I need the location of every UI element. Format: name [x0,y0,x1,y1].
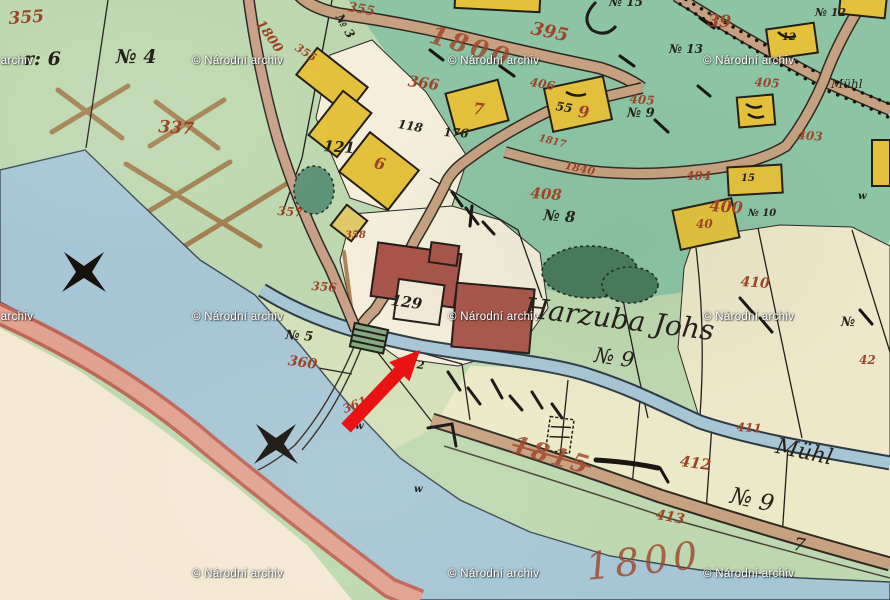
watermark-layer: © Národní archiv© Národní archiv© Národn… [0,0,890,600]
watermark-text: © Národní archiv [703,568,794,582]
watermark-text: © Národní archiv [0,55,33,69]
watermark-text: © Národní archiv [703,55,794,69]
watermark-text: © Národní archiv [192,311,283,325]
watermark-text: © Národní archiv [448,568,539,582]
watermark-text: © Národní archiv [0,311,33,325]
watermark-text: © Národní archiv [192,568,283,582]
map-screenshot: 3553371800355355180039536640639405405403… [0,0,890,600]
watermark-text: © Národní archiv [448,311,539,325]
watermark-text: © Národní archiv [192,55,283,69]
watermark-text: © Národní archiv [703,311,794,325]
watermark-text: © Národní archiv [448,55,539,69]
